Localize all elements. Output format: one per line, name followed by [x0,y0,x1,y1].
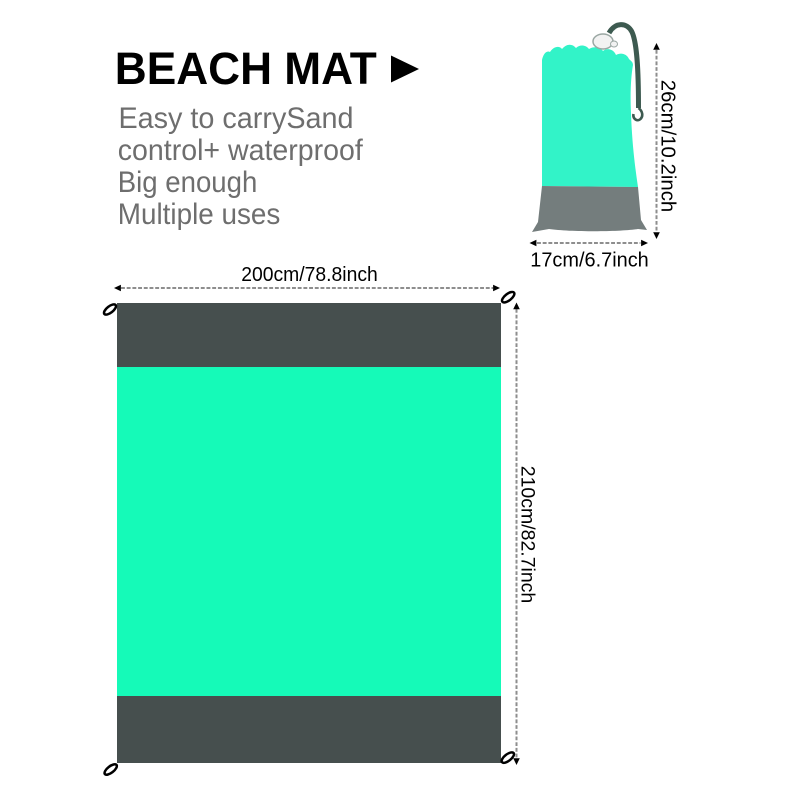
svg-text:17cm/6.7inch: 17cm/6.7inch [530,250,649,272]
svg-text:BEACH MAT: BEACH MAT [115,43,377,94]
svg-text:26cm/10.2inch: 26cm/10.2inch [657,80,679,213]
svg-text:210cm/82.7inch: 210cm/82.7inch [517,466,539,604]
svg-text:Easy to carrySand: Easy to carrySand [119,102,354,135]
svg-text:200cm/78.8inch: 200cm/78.8inch [241,264,378,286]
svg-text:Multiple uses: Multiple uses [118,198,280,231]
svg-text:control+ waterproof: control+ waterproof [118,134,364,167]
svg-text:Big enough: Big enough [118,166,257,199]
